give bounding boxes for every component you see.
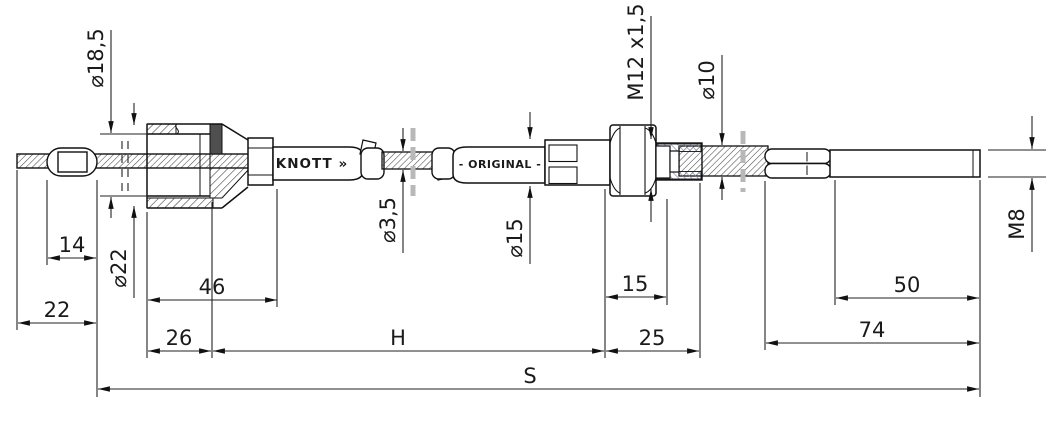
dim-label-25: 25 [639,326,666,350]
dim-label-dia-10: ⌀10 [695,60,719,99]
hex-nut [610,125,656,196]
dim-label-15: 15 [622,272,649,296]
sheath-marking-original: - ORIGINAL - [459,158,542,171]
brand-text-knott: KNOTT » [276,156,348,172]
dim-label-m12: M12 x1,5 [624,3,648,100]
dim-label-22: 22 [44,298,71,322]
dim-label-dia-15: ⌀15 [503,218,527,257]
dim-label-14: 14 [59,233,86,257]
outer-sheath-knott: KNOTT » [248,138,384,185]
threaded-sleeve-and-rear-cable [656,131,768,192]
dim-label-50: 50 [894,273,921,297]
sheath-original-and-adjuster: - ORIGINAL - [453,140,610,185]
dim-label-S: S [523,364,536,388]
dim-label-dia-3-5: ⌀3,5 [376,197,400,243]
dim-label-H: H [390,326,406,350]
technical-drawing-bowden-cable: KNOTT » - ORIGINAL - [0,0,1052,430]
dim-label-dia-22: ⌀22 [107,248,131,287]
dim-label-dia-18-5: ⌀18,5 [84,28,108,87]
dim-label-74: 74 [859,318,886,342]
exposed-inner-cable [382,128,455,196]
end-fitting-and-rod [765,149,980,178]
dim-label-26: 26 [166,326,193,350]
dim-label-m8: M8 [1005,208,1029,239]
dim-label-46: 46 [199,275,226,299]
